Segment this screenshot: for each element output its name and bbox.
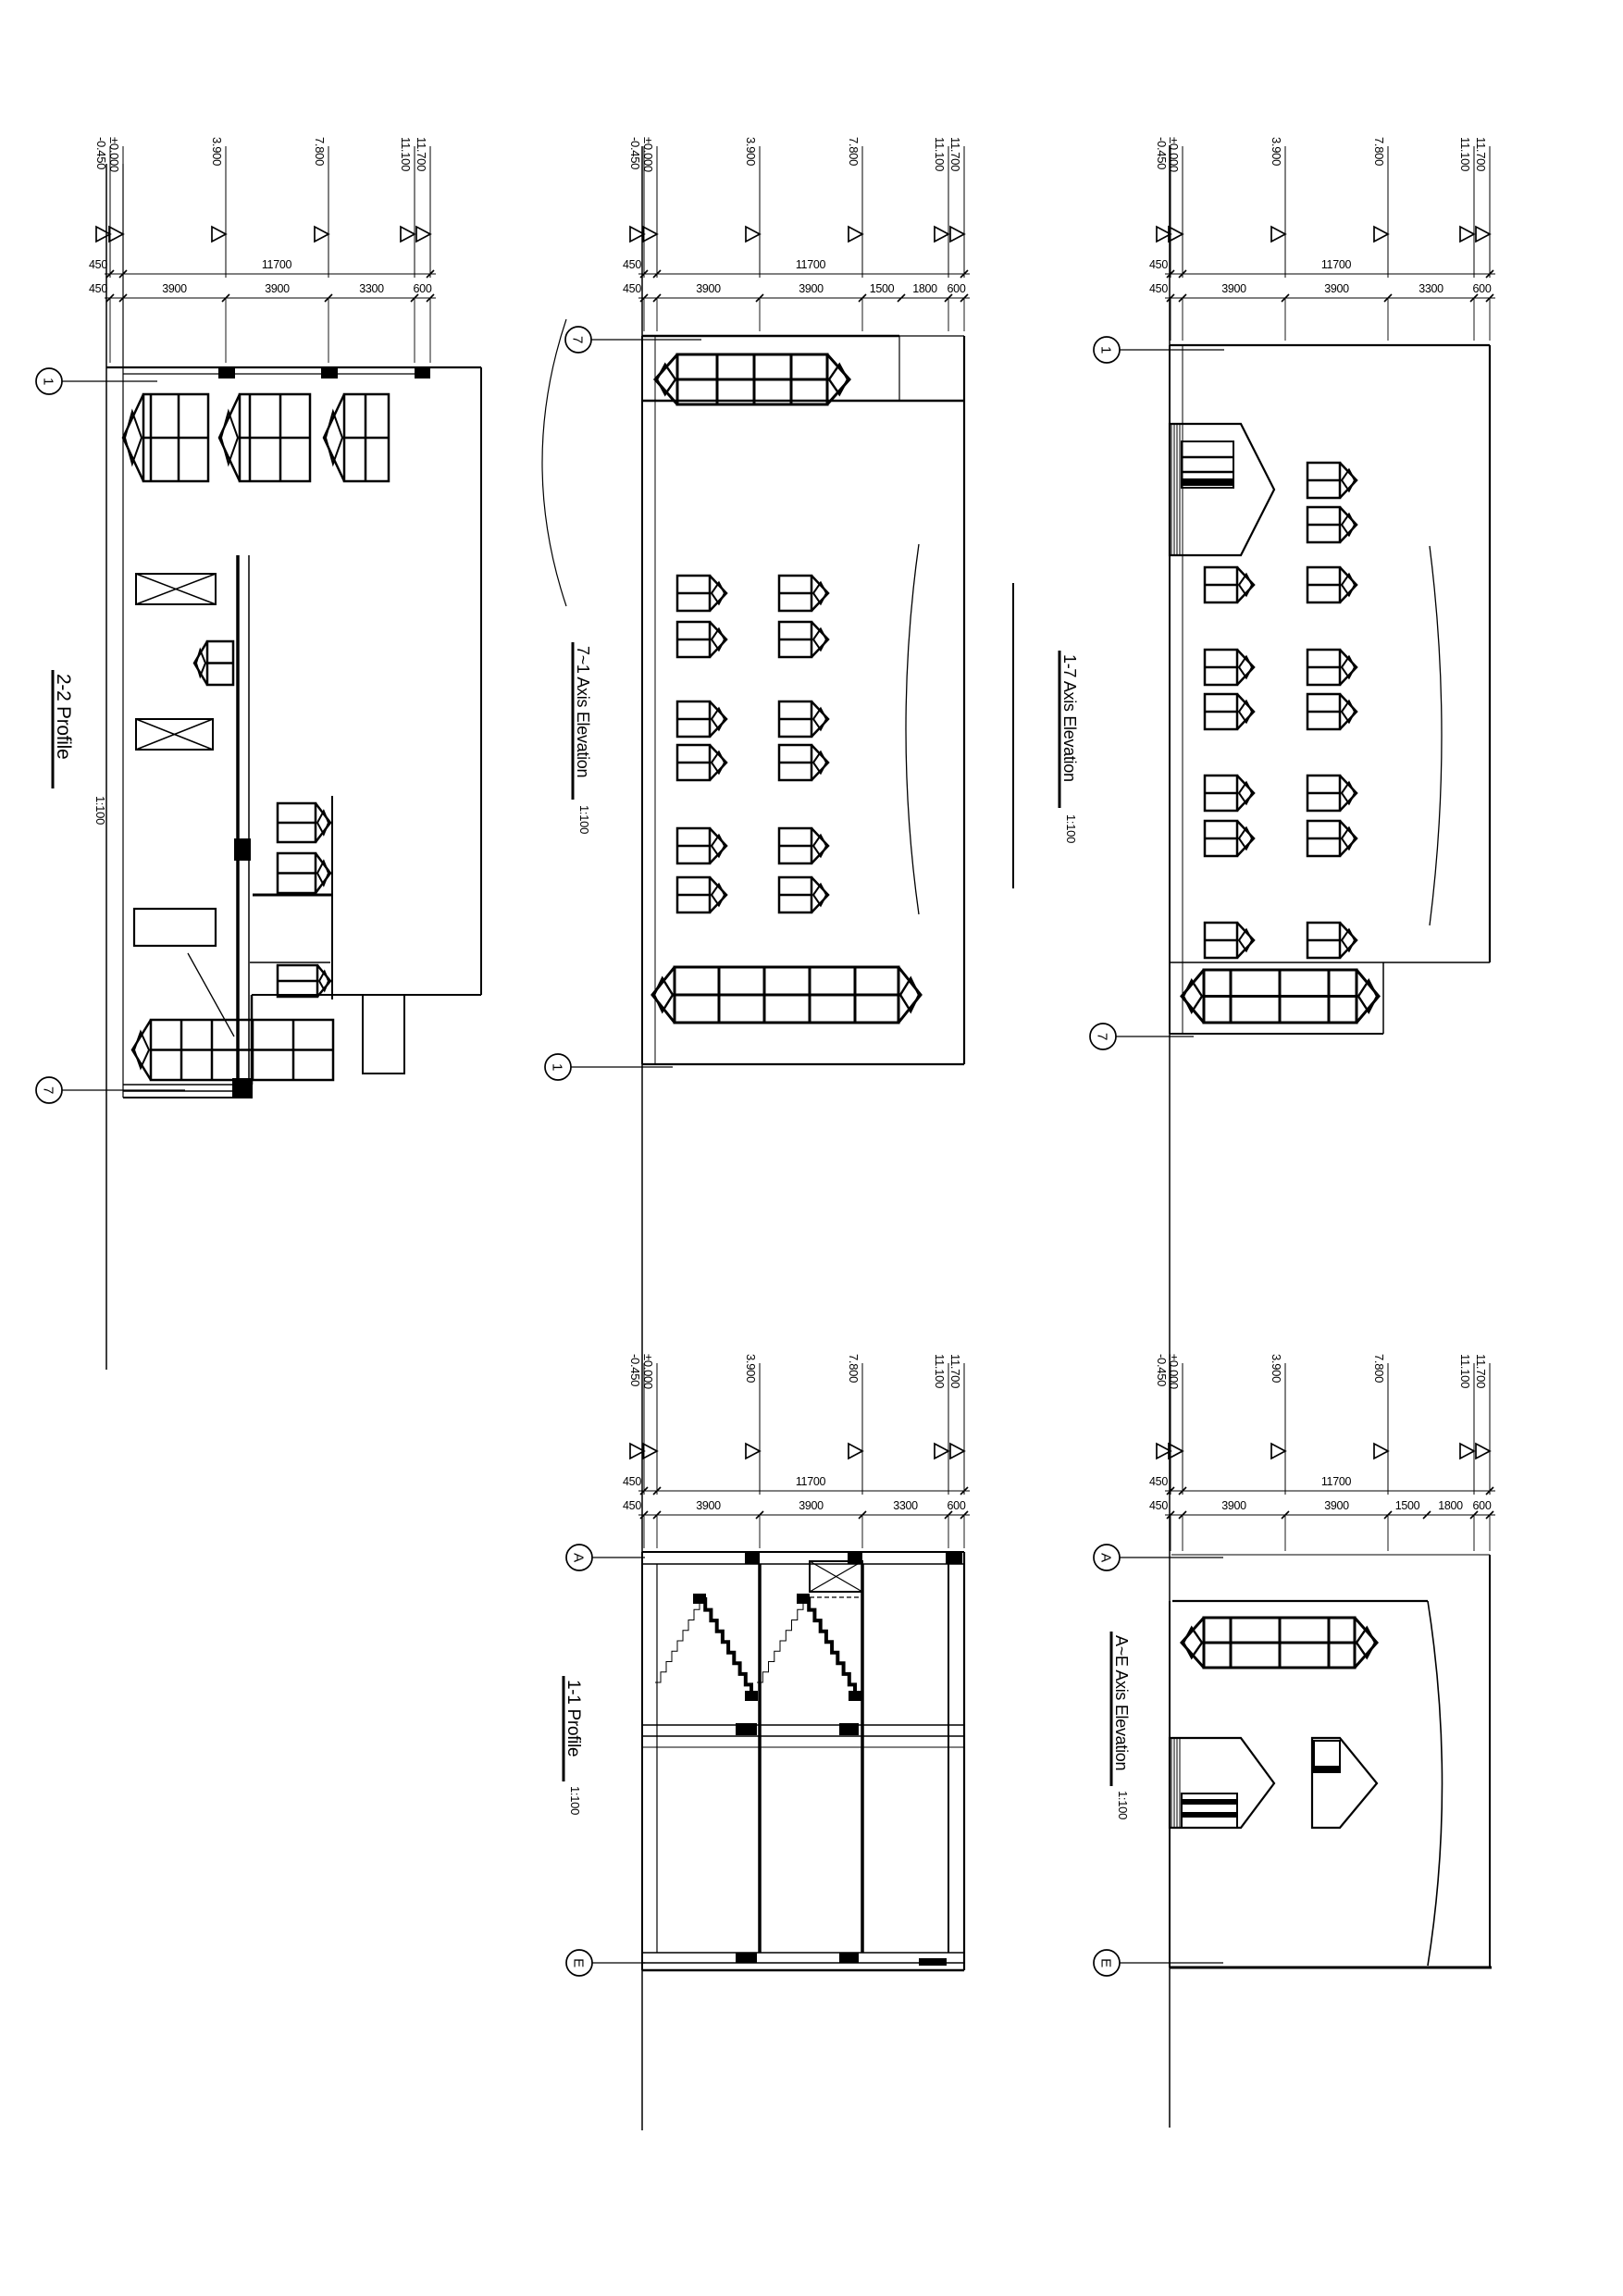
dimension-value: 3900 — [799, 1499, 824, 1512]
elevation-value: -0.450 — [1155, 1354, 1169, 1386]
window-mullion — [1182, 1812, 1237, 1818]
dimension-value: 1800 — [912, 282, 937, 295]
elevation-value: 7.800 — [1372, 137, 1386, 166]
beam-block — [745, 1552, 760, 1564]
stair-landing — [849, 1691, 861, 1701]
beam-block — [839, 1953, 859, 1963]
elevation-value: 11.700 — [415, 137, 428, 171]
blueprint-sheet: -0.450±0.0003.9007.80011.10011.700450117… — [0, 0, 1623, 2296]
dimension-value: 450 — [89, 258, 107, 271]
dimension-value: 450 — [1149, 1499, 1168, 1512]
elevation-value: ±0.000 — [107, 137, 121, 172]
window-mullion — [1314, 1766, 1340, 1772]
elevation-value: 7.800 — [847, 1354, 861, 1383]
beam-block — [321, 367, 338, 379]
elevation-value: 11.100 — [1458, 137, 1472, 171]
elevation-value: -0.450 — [628, 1354, 642, 1386]
elevation-value: 3.900 — [1270, 1354, 1283, 1383]
dimension-value: 3900 — [696, 1499, 721, 1512]
elevation-value: ±0.000 — [641, 137, 655, 172]
elevation-value: -0.450 — [94, 137, 108, 169]
axis-label: E — [571, 1958, 587, 1967]
axis-label: 7 — [41, 1086, 56, 1094]
elevation-value: ±0.000 — [1167, 137, 1181, 172]
dimension-value: 3900 — [162, 282, 187, 295]
dimension-value: 11700 — [796, 1475, 826, 1488]
dimension-value: 3900 — [1221, 1499, 1246, 1512]
dimension-value: 11700 — [796, 258, 826, 271]
drawing-title: 7~1 Axis Elevation — [574, 646, 592, 777]
elevation-value: 11.100 — [933, 137, 947, 171]
axis-label: 1 — [1098, 346, 1114, 354]
dimension-value: 11700 — [262, 258, 292, 271]
dimension-value: 450 — [623, 258, 641, 271]
elevation-value: 11.100 — [1458, 1354, 1472, 1388]
elevation-value: 11.700 — [948, 137, 962, 171]
elevation-value: 3.900 — [744, 1354, 758, 1383]
elevation-value: 11.100 — [399, 137, 413, 171]
dimension-value: 3900 — [265, 282, 290, 295]
drawing-title: 1-7 Axis Elevation — [1060, 654, 1079, 782]
dimension-value: 450 — [623, 1499, 641, 1512]
dimension-value: 3300 — [359, 282, 384, 295]
axis-label: 1 — [41, 378, 56, 385]
beam-block — [736, 1723, 757, 1735]
dimension-value: 450 — [1149, 258, 1168, 271]
elevation-value: 3.900 — [1270, 137, 1283, 166]
dimension-value: 600 — [948, 1499, 966, 1512]
beam-block — [234, 838, 251, 861]
window-mullion — [1182, 1799, 1237, 1805]
drawing-title: 1-1 Profile — [564, 1680, 583, 1756]
elevation-value: 7.800 — [847, 137, 861, 166]
drawing-title: 2-2 Profile — [53, 674, 74, 759]
elevation-value: 11.700 — [1474, 137, 1488, 171]
dimension-value: 600 — [948, 282, 966, 295]
dimension-value: 450 — [89, 282, 107, 295]
dimension-value: 600 — [414, 282, 432, 295]
elevation-value: 3.900 — [744, 137, 758, 166]
beam-block — [839, 1723, 859, 1735]
axis-label: A — [571, 1553, 587, 1562]
axis-label: A — [1098, 1553, 1114, 1562]
dimension-value: 3900 — [1324, 1499, 1349, 1512]
dimension-value: 11700 — [1321, 258, 1352, 271]
drawing-scale: 1:100 — [1064, 814, 1078, 843]
dimension-value: 600 — [1473, 282, 1492, 295]
elevation-value: 7.800 — [313, 137, 327, 166]
axis-label: 7 — [570, 336, 586, 343]
elevation-value: -0.450 — [1155, 137, 1169, 169]
elevation-value: 3.900 — [210, 137, 224, 166]
dimension-value: 3300 — [893, 1499, 918, 1512]
dimension-value: 450 — [623, 282, 641, 295]
elevation-value: -0.450 — [628, 137, 642, 169]
dimension-value: 3900 — [1324, 282, 1349, 295]
beam-block — [218, 367, 235, 379]
stair-landing — [693, 1594, 706, 1604]
elevation-value: ±0.000 — [641, 1354, 655, 1389]
dimension-value: 3300 — [1419, 282, 1443, 295]
window-sill — [1182, 478, 1233, 486]
dimension-value: 450 — [1149, 282, 1168, 295]
drawing-scale: 1:100 — [568, 1786, 582, 1815]
dimension-value: 450 — [623, 1475, 641, 1488]
dimension-value: 1800 — [1438, 1499, 1463, 1512]
dimension-value: 3900 — [799, 282, 824, 295]
stair-landing — [797, 1594, 810, 1604]
stair-landing — [745, 1691, 758, 1701]
drawing-scale: 1:100 — [93, 796, 107, 825]
beam-block — [736, 1953, 757, 1963]
dimension-value: 600 — [1473, 1499, 1492, 1512]
drawing-scale: 1:100 — [577, 805, 591, 834]
dimension-value: 3900 — [696, 282, 721, 295]
dimension-value: 11700 — [1321, 1475, 1352, 1488]
elevation-value: 7.800 — [1372, 1354, 1386, 1383]
elevation-value: ±0.000 — [1167, 1354, 1181, 1389]
beam-block — [919, 1958, 947, 1966]
axis-label: E — [1098, 1958, 1114, 1967]
dimension-value: 1500 — [870, 282, 895, 295]
axis-label: 7 — [1095, 1033, 1110, 1040]
axis-label: 1 — [550, 1063, 565, 1071]
dimension-value: 450 — [1149, 1475, 1168, 1488]
dimension-value: 1500 — [1395, 1499, 1420, 1512]
beam-block — [946, 1552, 962, 1564]
drawing-scale: 1:100 — [1116, 1791, 1130, 1819]
elevation-value: 11.700 — [1474, 1354, 1488, 1388]
dimension-value: 3900 — [1221, 282, 1246, 295]
drawing-title: A~E Axis Elevation — [1112, 1635, 1131, 1770]
elevation-value: 11.700 — [948, 1354, 962, 1388]
beam-block — [415, 367, 430, 379]
elevation-value: 11.100 — [933, 1354, 947, 1388]
